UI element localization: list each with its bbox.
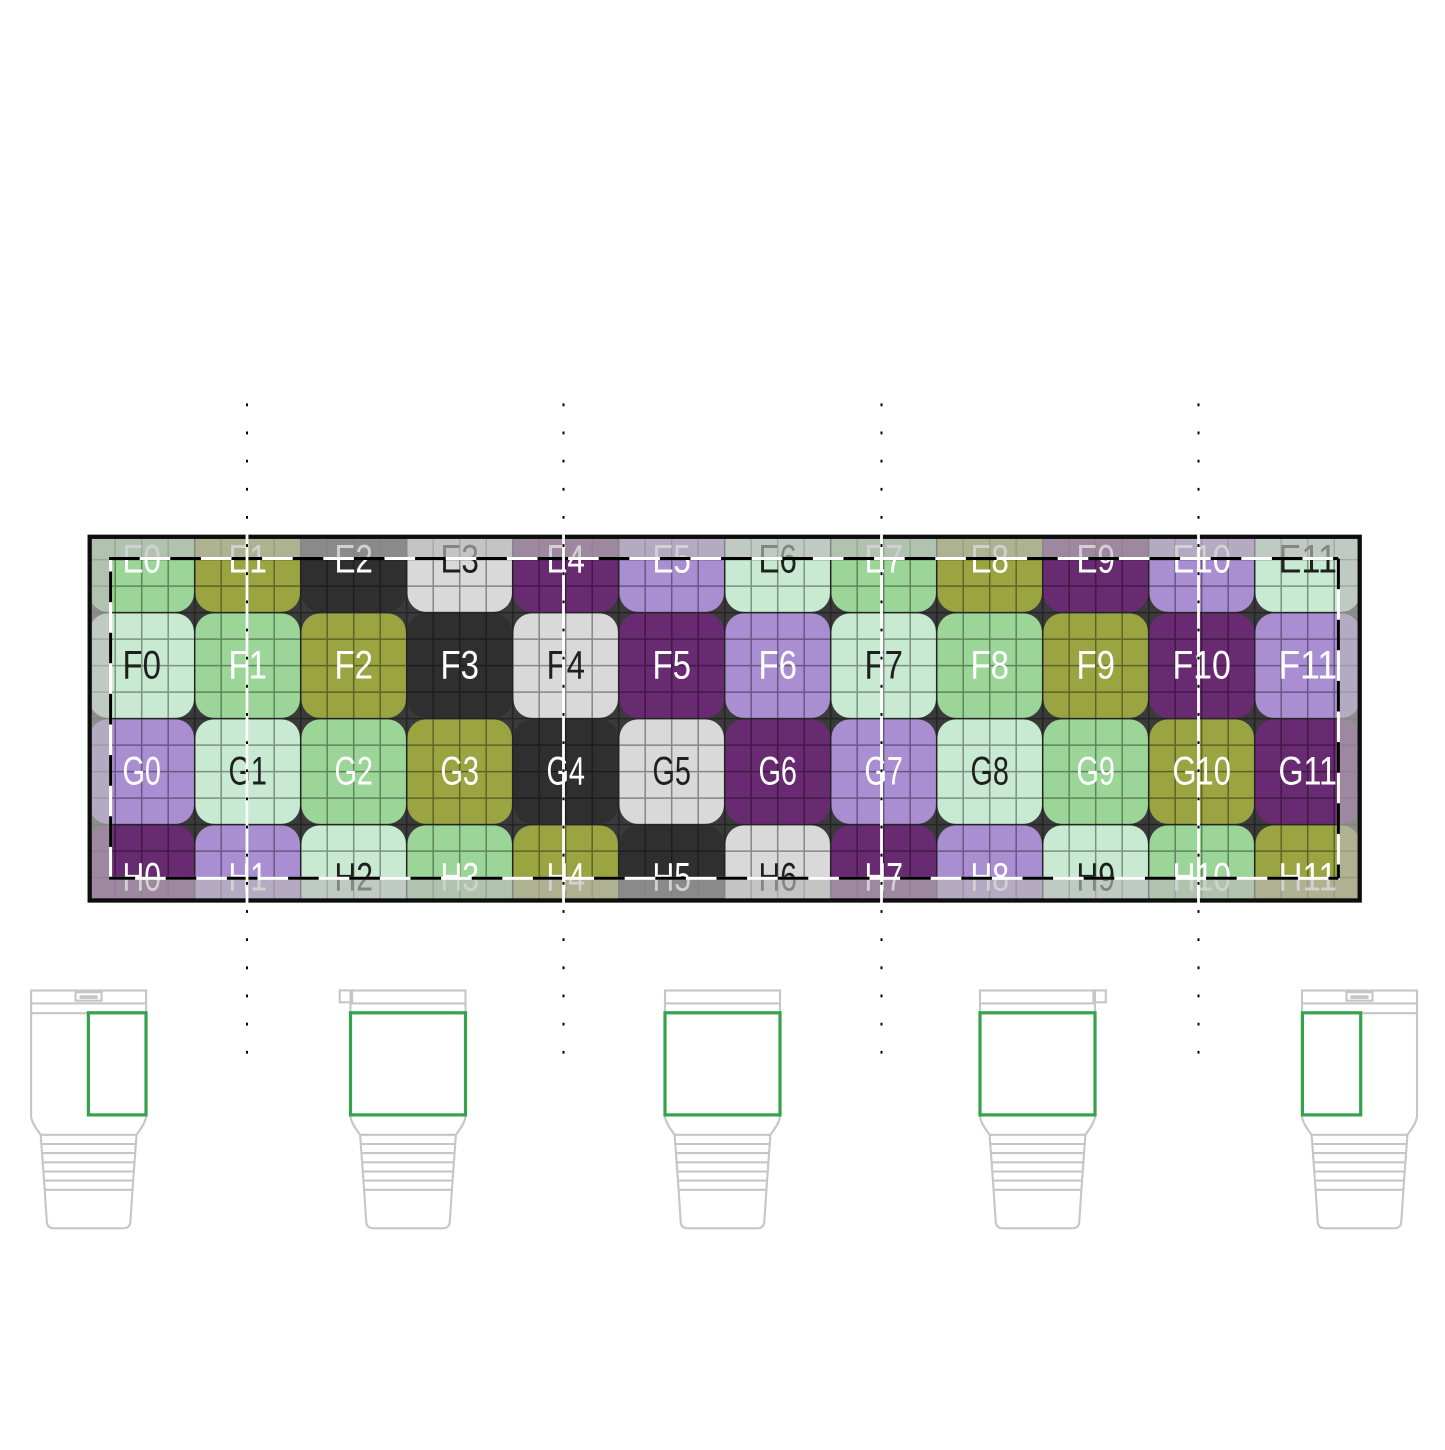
svg-text:F8: F8 <box>970 644 1009 688</box>
svg-text:G6: G6 <box>758 750 797 794</box>
svg-text:G4: G4 <box>546 750 585 794</box>
svg-text:F4: F4 <box>546 644 585 688</box>
svg-text:G11: G11 <box>1278 750 1337 794</box>
svg-text:F7: F7 <box>864 644 903 688</box>
svg-text:G10: G10 <box>1172 750 1231 794</box>
svg-text:F2: F2 <box>334 644 373 688</box>
svg-text:G5: G5 <box>652 750 691 794</box>
svg-text:G8: G8 <box>970 750 1009 794</box>
svg-text:F10: F10 <box>1172 644 1231 688</box>
svg-text:G2: G2 <box>334 750 373 794</box>
svg-text:G0: G0 <box>122 750 161 794</box>
svg-text:F6: F6 <box>758 644 797 688</box>
svg-text:F5: F5 <box>652 644 691 688</box>
svg-text:F0: F0 <box>122 644 161 688</box>
svg-text:G9: G9 <box>1076 750 1115 794</box>
svg-text:G3: G3 <box>440 750 479 794</box>
svg-text:G7: G7 <box>864 750 903 794</box>
svg-text:F3: F3 <box>440 644 479 688</box>
svg-text:F9: F9 <box>1076 644 1115 688</box>
svg-text:F11: F11 <box>1278 644 1337 688</box>
